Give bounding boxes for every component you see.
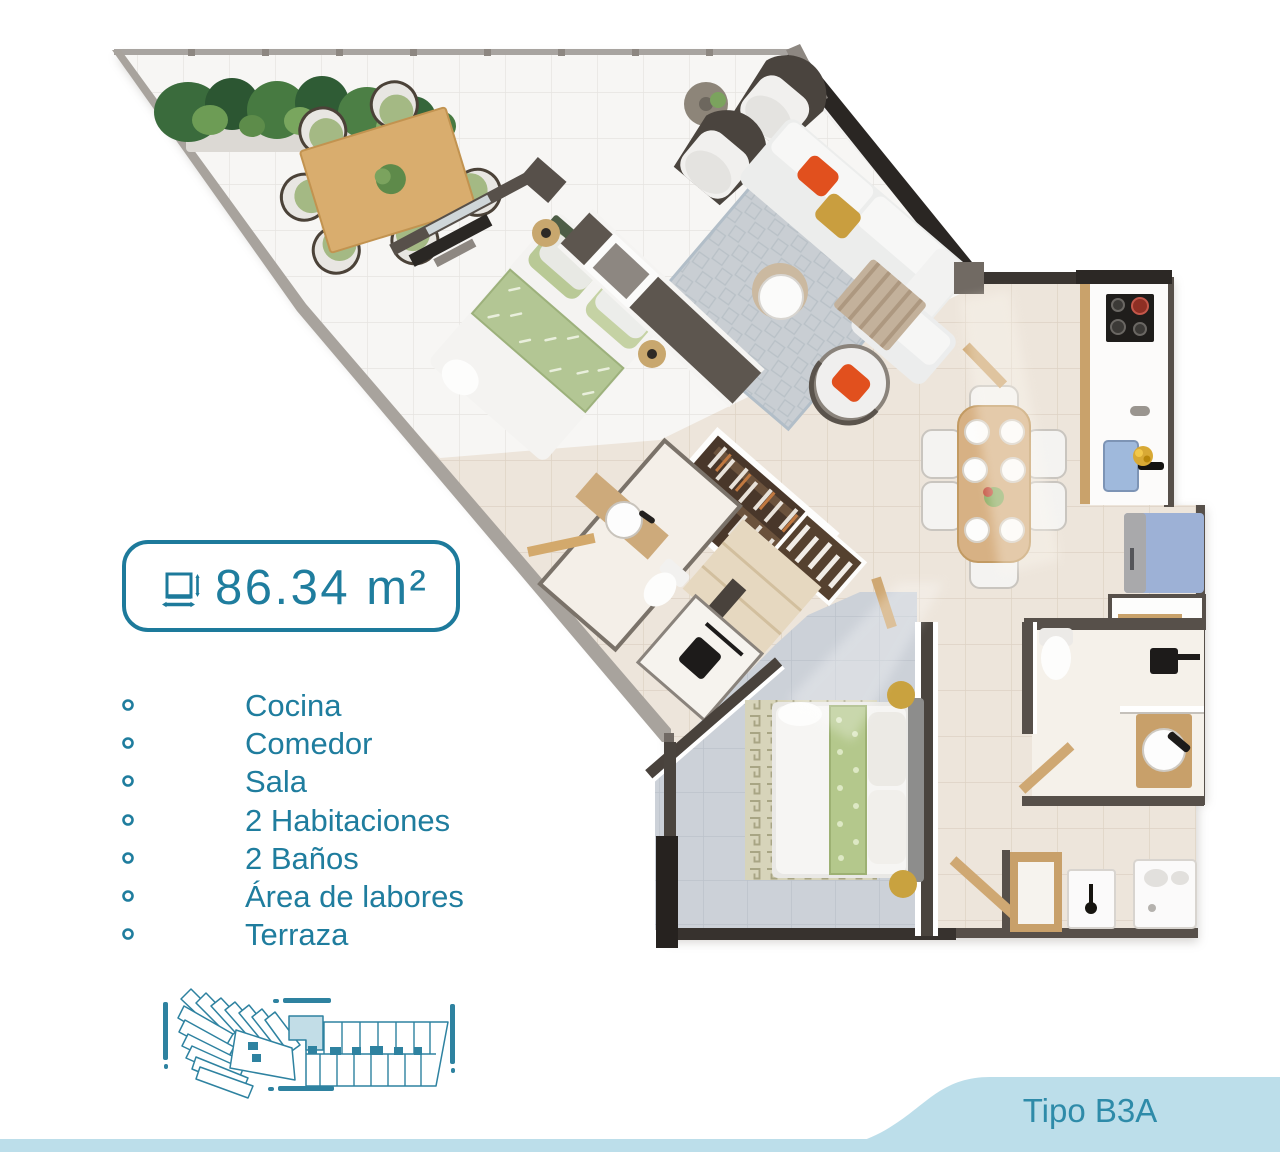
svg-text:Sala: Sala [245, 764, 308, 799]
svg-text:Comedor: Comedor [245, 726, 373, 761]
svg-text:Área de labores: Área de labores [245, 879, 464, 914]
svg-text:2 Baños: 2 Baños [245, 841, 359, 876]
svg-text:Tipo B3A: Tipo B3A [1023, 1092, 1158, 1129]
svg-text:86.34 m²: 86.34 m² [215, 561, 428, 615]
svg-text:Cocina: Cocina [245, 688, 342, 723]
svg-text:Terraza: Terraza [245, 917, 349, 952]
svg-text:2 Habitaciones: 2 Habitaciones [245, 803, 450, 838]
